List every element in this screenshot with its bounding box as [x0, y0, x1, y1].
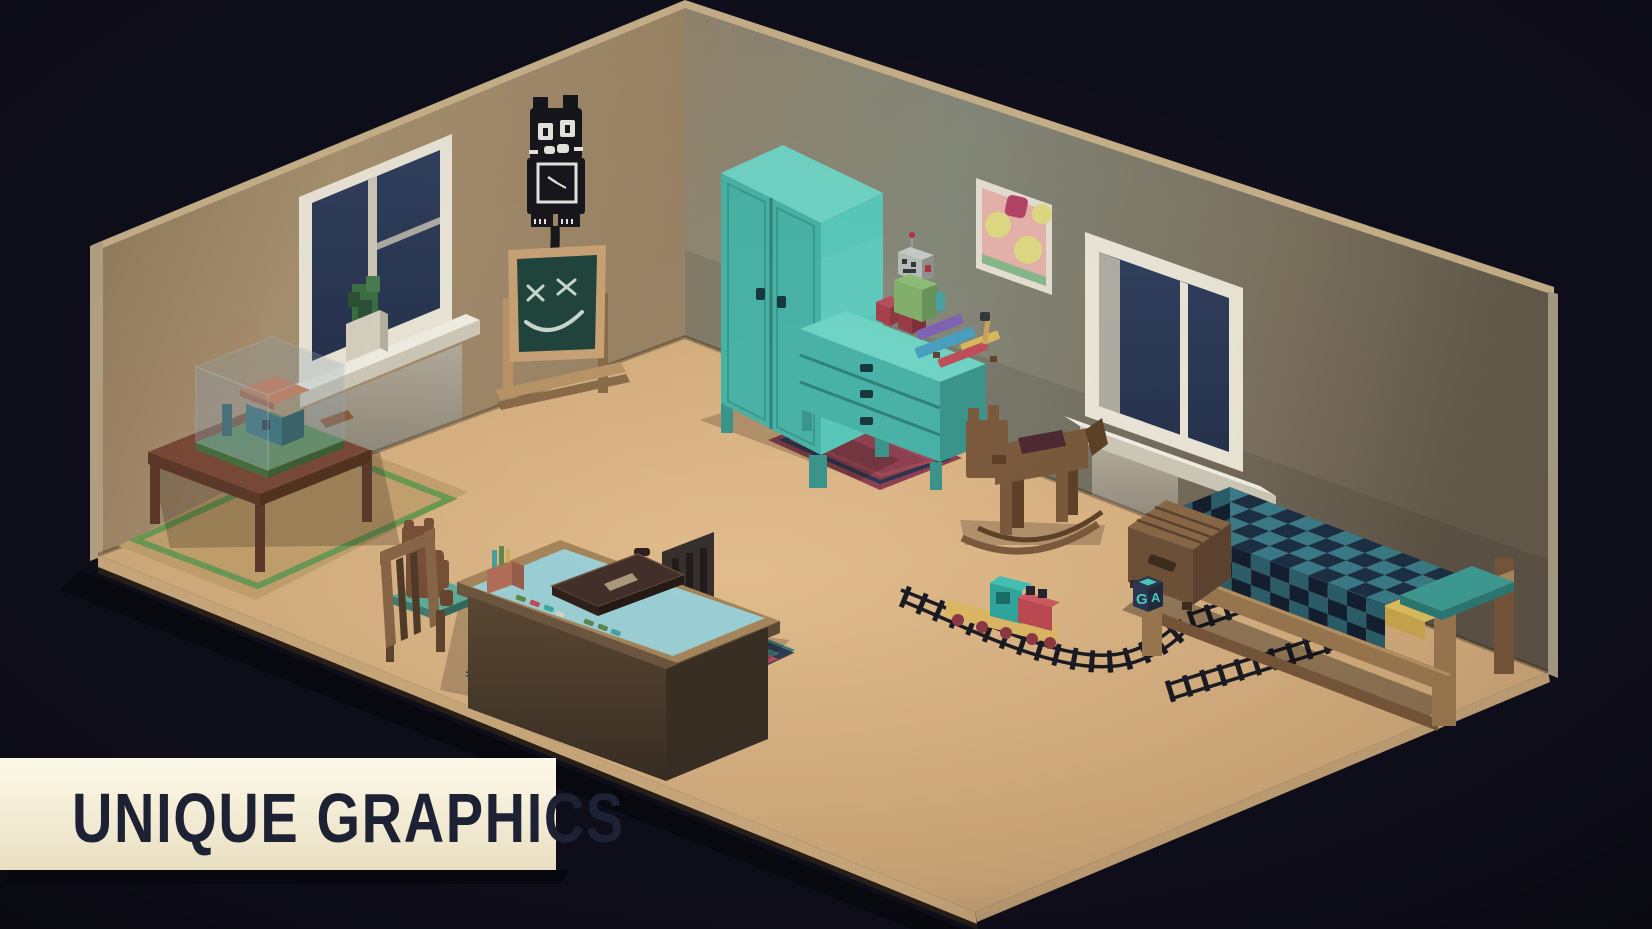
game-screenshot: G A — [0, 0, 1652, 929]
room-scene: G A — [0, 0, 1652, 929]
banner-label: UNIQUE GRAPHICS — [72, 780, 625, 857]
caption-banner: UNIQUE GRAPHICS — [0, 758, 625, 884]
